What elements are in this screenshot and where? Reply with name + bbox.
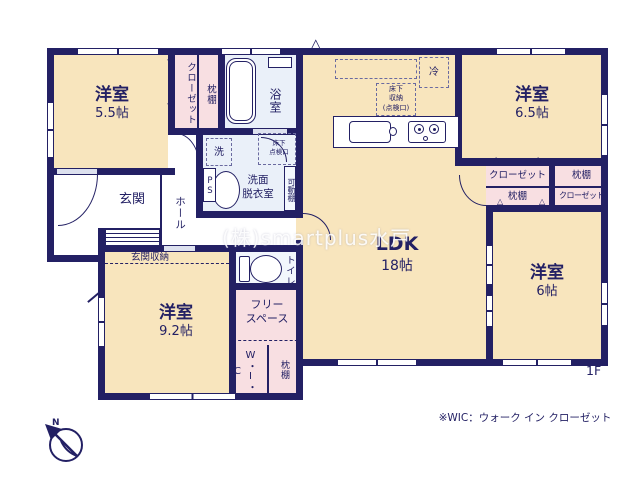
label-ps: PS <box>203 171 215 201</box>
bedroom55-name: 洋室 <box>60 84 164 106</box>
label-closet-left-top: クローゼット <box>486 170 549 182</box>
bedroom65-name: 洋室 <box>482 84 582 106</box>
fold-door-mark-icon: ◁ <box>167 100 173 108</box>
washroom-line2: 脱衣室 <box>232 188 284 202</box>
toilet-bowl <box>250 255 282 283</box>
label-freespace: フリー スペース <box>236 298 298 327</box>
wall-porch-bottom <box>47 255 104 262</box>
window-bottom-ldk <box>338 359 416 366</box>
label-washroom: 洗面 脱衣室 <box>232 174 284 201</box>
label-underfloor-hatch: 床下 点検口 <box>264 139 294 157</box>
wall-wet-ldk-upper <box>296 48 303 214</box>
wall-bedroom92-toilet <box>229 252 236 400</box>
freespace-line2: スペース <box>236 312 298 326</box>
bedroom92-name: 洋室 <box>126 302 226 324</box>
label-washer: 洗 <box>206 146 232 159</box>
label-bedroom65: 洋室 6.5帖 <box>482 84 582 123</box>
label-wic: W・I・C <box>243 348 257 394</box>
label-toilet: トイレ <box>283 254 295 288</box>
closet-topleft-divider <box>197 55 199 132</box>
svg-text:N: N <box>52 418 60 428</box>
kitchen-faucet <box>389 127 397 136</box>
ldk-size: 18帖 <box>347 257 447 275</box>
label-bedroom92: 洋室 9.2帖 <box>126 302 226 341</box>
genkan-edge-line <box>160 175 162 245</box>
window-top-bedroom65 <box>497 48 565 55</box>
washroom-line1: 洗面 <box>232 174 284 188</box>
window-right-bedroom6 <box>601 283 608 325</box>
wall-closet-bath <box>218 48 225 132</box>
label-fridge: 冷 <box>419 66 449 79</box>
label-underfloor-storage: 床下 収納 (点検口) <box>376 85 416 113</box>
stove-burner-3 <box>423 136 428 141</box>
window-bottom-bedroom6 <box>503 359 571 366</box>
window-top-bath <box>222 48 280 55</box>
compass-north-icon: N <box>36 414 92 470</box>
watermark-text: (株)smartplus水戸 <box>222 222 482 251</box>
label-bedroom55: 洋室 5.5帖 <box>60 84 164 123</box>
underfloor-storage-line3: (点検口) <box>376 104 416 113</box>
fold-door-mark-icon: △ <box>535 156 541 164</box>
label-closet-topleft: クローゼット <box>182 58 196 128</box>
window-bottom-bedroom92 <box>150 393 235 400</box>
label-closet-right-top: 枕棚 <box>555 170 608 182</box>
wall-washroom-left <box>196 128 203 218</box>
entrance-door-leaf <box>56 168 98 175</box>
underfloor-storage-line2: 収納 <box>376 94 416 103</box>
underfloor-hatch-line1: 床下 <box>264 139 294 148</box>
window-left-bedroom92 <box>98 298 105 346</box>
fold-door-mark-icon: △ <box>497 198 503 206</box>
kitchen-sink <box>349 121 391 143</box>
label-wic-pillow-shelf: 枕棚 <box>277 352 289 388</box>
bedroom92-size: 9.2帖 <box>126 324 226 341</box>
wall-bedroom65-bottom <box>455 158 608 166</box>
wall-ldk-bedroom6 <box>486 205 493 366</box>
gable-vent-icon: △ <box>310 37 322 52</box>
label-movable-shelf: 可動棚 <box>285 170 296 210</box>
window-top-bedroom55 <box>78 48 158 55</box>
stove-burner-dot-1 <box>418 128 421 131</box>
floor-label: 1F <box>586 363 620 379</box>
closet-row-shelf-line <box>486 186 608 188</box>
label-closet-right-bottom: クローゼット <box>555 191 608 201</box>
toilet-tank <box>239 256 250 282</box>
window-ldk-bedroom6-a <box>486 246 493 284</box>
wic-dashed-line <box>233 340 303 342</box>
fold-door-mark-icon: △ <box>539 198 545 206</box>
stove-burner-dot-2 <box>433 128 436 131</box>
underfloor-hatch-line2: 点検口 <box>264 148 294 157</box>
wic-note: ※WIC：ウォーク イン クローゼット <box>430 412 620 426</box>
wic-divider <box>267 345 269 393</box>
fold-door-mark-icon: △ <box>493 156 499 164</box>
label-genkan: 玄関 <box>107 192 157 209</box>
label-hall: ホール <box>172 192 186 234</box>
bedroom6-name: 洋室 <box>497 262 597 284</box>
label-bath: 浴室 <box>266 78 282 124</box>
cupboard-space-box <box>335 59 417 79</box>
freespace-line1: フリー <box>236 298 298 312</box>
label-pillow-shelf-topleft: 枕棚 <box>203 72 216 116</box>
window-ldk-bedroom6-b <box>486 296 493 326</box>
fold-door-mark-icon: ◁ <box>167 56 173 64</box>
label-genkan-storage: 玄関収納 <box>104 252 196 264</box>
label-bedroom6: 洋室 6帖 <box>497 262 597 301</box>
sliding-door-bedroom92 <box>163 245 196 252</box>
shower-unit <box>268 57 292 68</box>
bedroom55-size: 5.5帖 <box>60 106 164 123</box>
bathtub-inner <box>229 61 253 121</box>
bedroom65-size: 6.5帖 <box>482 106 582 123</box>
bedroom6-size: 6帖 <box>497 284 597 301</box>
wall-ldk-bedroom65 <box>455 48 462 166</box>
window-right-bedroom65 <box>601 95 608 155</box>
floor-plan-canvas: 洋室 5.5帖 洋室 6.5帖 洋室 6帖 洋室 9.2帖 LDK 18帖 浴室… <box>0 0 640 480</box>
wall-closetrow-bottom <box>486 205 608 212</box>
wall-washroom-bottom <box>196 211 303 218</box>
window-left-bedroom55 <box>47 103 54 157</box>
